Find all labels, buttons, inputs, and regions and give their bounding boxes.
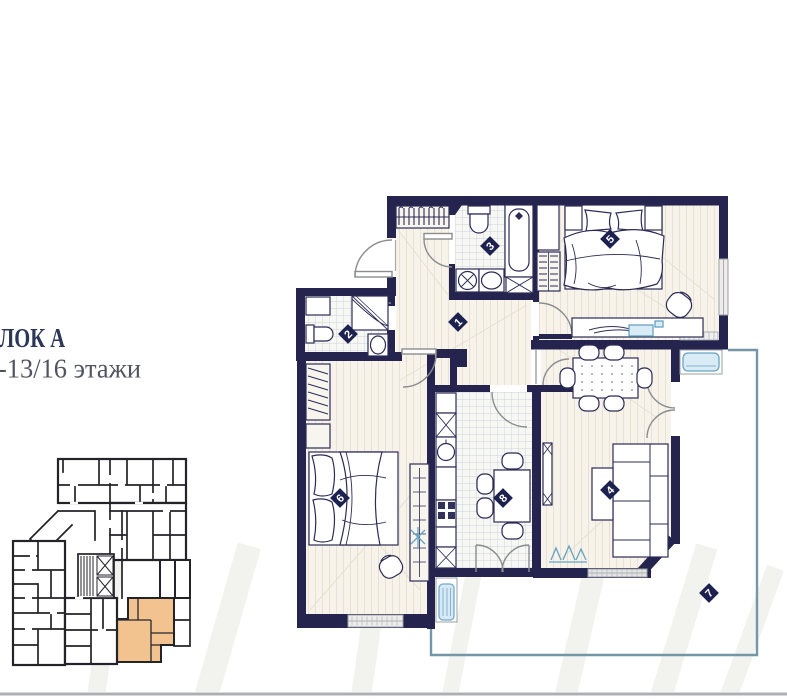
svg-text:-13/16 этажи: -13/16 этажи: [0, 354, 141, 384]
svg-text:ЛОК А: ЛОК А: [0, 323, 65, 353]
